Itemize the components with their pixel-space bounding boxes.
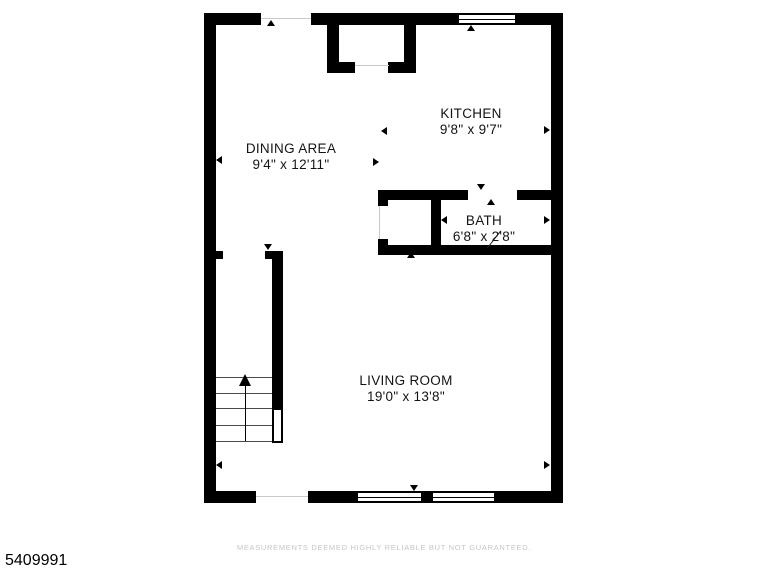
- dining-area-label: DINING AREA 9'4" x 12'11": [246, 141, 336, 173]
- window-glazing-line: [433, 497, 494, 498]
- bath-label: BATH 6'8" x 2'8": [453, 213, 515, 245]
- bath-wall-top-left: [378, 190, 468, 200]
- measure-arrow-kitchen-left-icon: [381, 127, 387, 135]
- measure-arrow-living-left-icon: [216, 461, 222, 469]
- measurements-disclaimer: MEASUREMENTS DEEMED HIGHLY RELIABLE BUT …: [0, 543, 768, 552]
- window-mullion: [423, 491, 431, 503]
- alcove-wall-right-stub: [388, 62, 416, 73]
- room-dimensions: 19'0" x 13'8": [359, 389, 452, 405]
- room-name: BATH: [453, 213, 515, 229]
- marker-stair-top-icon: [264, 244, 272, 250]
- bottom-doorway-threshold: [256, 496, 308, 497]
- top-doorway-threshold: [261, 18, 311, 19]
- living-room-label: LIVING ROOM 19'0" x 13'8": [359, 373, 452, 405]
- stair-opening-nub: [216, 251, 223, 259]
- stair-tread: [216, 393, 272, 394]
- window-glazing-line: [459, 19, 515, 20]
- alcove-threshold: [355, 65, 389, 66]
- room-name: DINING AREA: [246, 141, 336, 157]
- measure-arrow-kitchen-right-icon: [544, 126, 550, 134]
- marker-bath-bottom-icon: [407, 252, 415, 258]
- stair-tread: [216, 441, 272, 442]
- wall-top-segment-c: [517, 13, 563, 25]
- bath-wall-top-left-stub: [378, 190, 388, 206]
- wall-exterior-left: [204, 13, 216, 503]
- measure-arrow-bath-right-icon: [544, 216, 550, 224]
- marker-bath-door-inner-icon: [487, 199, 495, 205]
- measure-arrow-dining-right-icon: [373, 158, 379, 166]
- living-room-window-right: [431, 491, 496, 503]
- living-room-window-left: [356, 491, 423, 503]
- measure-arrow-bath-left-icon: [441, 216, 447, 224]
- marker-kitchen-window-icon: [467, 25, 475, 31]
- listing-number: 5409991: [5, 552, 67, 570]
- wall-exterior-right: [551, 13, 563, 503]
- marker-bottom-window-icon: [410, 485, 418, 491]
- wall-bottom-segment-b: [308, 491, 356, 503]
- stair-direction-stem: [245, 383, 246, 441]
- room-dimensions: 9'8" x 9'7": [440, 122, 502, 138]
- marker-top-doorway-icon: [267, 20, 275, 26]
- bath-wall-top-right: [517, 190, 551, 200]
- stair-tread: [216, 425, 272, 426]
- stair-tread: [216, 408, 272, 409]
- kitchen-window: [457, 13, 517, 25]
- wall-top-segment-b: [311, 13, 457, 25]
- measure-arrow-dining-left-icon: [216, 156, 222, 164]
- stair-wall: [272, 251, 283, 408]
- room-name: KITCHEN: [440, 106, 502, 122]
- room-dimensions: 6'8" x 2'8": [453, 229, 515, 245]
- alcove-wall-left-stub: [327, 62, 355, 73]
- closet-opening-threshold: [379, 206, 380, 239]
- floor-plan-page: KITCHEN 9'8" x 9'7" DINING AREA 9'4" x 1…: [0, 0, 768, 576]
- wall-bottom-segment-c: [496, 491, 563, 503]
- wall-top-segment-a: [204, 13, 261, 25]
- room-name: LIVING ROOM: [359, 373, 452, 389]
- window-glazing-line: [358, 497, 421, 498]
- bath-wall-bottom-left-stub: [378, 239, 388, 255]
- marker-bath-door-outer-icon: [477, 184, 485, 190]
- bath-wall-bottom: [378, 245, 551, 255]
- room-dimensions: 9'4" x 12'11": [246, 157, 336, 173]
- kitchen-label: KITCHEN 9'8" x 9'7": [440, 106, 502, 138]
- stair-wall-top-stub: [265, 251, 283, 259]
- measure-arrow-living-right-icon: [544, 461, 550, 469]
- stair-up-arrow-icon: [239, 374, 251, 386]
- wall-bottom-segment-a: [204, 491, 256, 503]
- stair-railing: [272, 408, 283, 443]
